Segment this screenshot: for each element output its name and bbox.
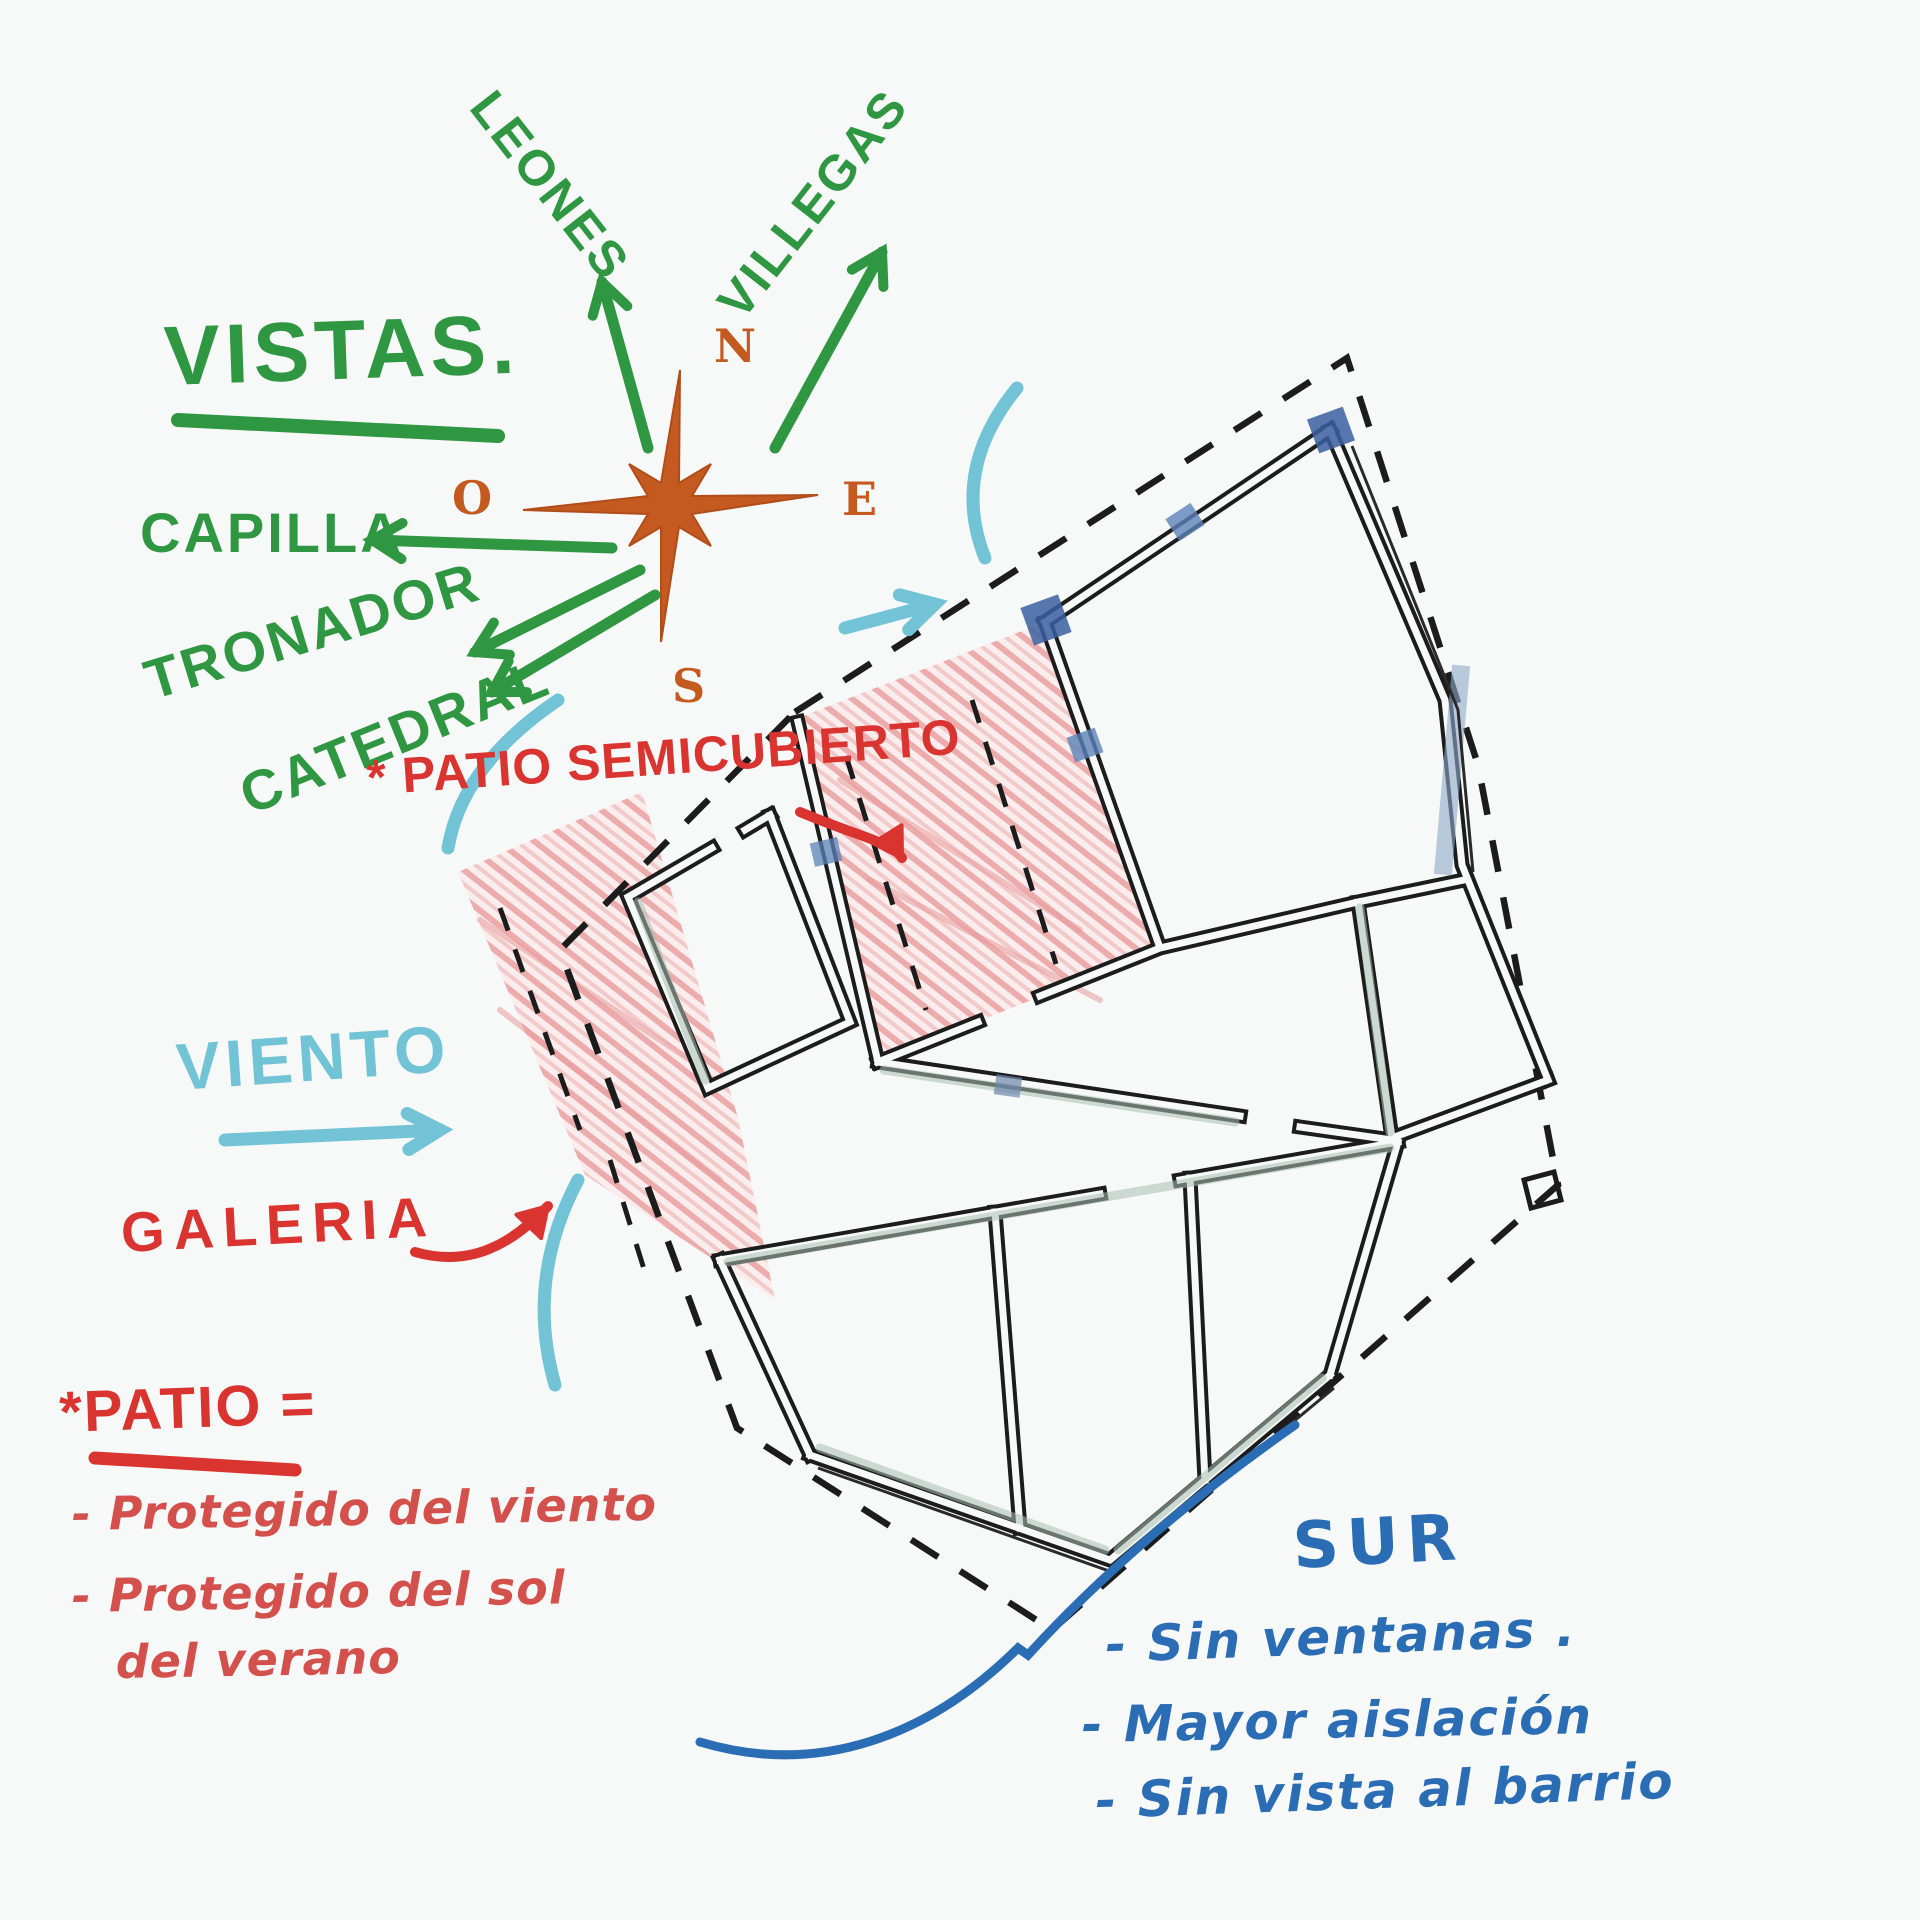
patio-heading-underline <box>95 1458 295 1470</box>
galeria-label: GALERIA <box>119 1185 437 1264</box>
wind-arc-top <box>973 388 1017 558</box>
patio-semicubierto-hatch <box>798 622 1160 1062</box>
compass-s-label: S <box>672 659 705 713</box>
patio-notes-heading: *PATIO = <box>58 1371 317 1445</box>
arrow-tronador <box>475 570 640 652</box>
label-capilla: CAPILLA <box>140 501 404 564</box>
viento-label: VIENTO <box>174 1011 453 1104</box>
sur-note-1: - Sin ventanas . <box>1104 1600 1577 1674</box>
label-villegas: VILLEGAS <box>707 78 920 328</box>
galeria-hatch <box>458 792 775 1300</box>
arrow-capilla <box>372 540 612 548</box>
window-corridor <box>994 1074 1023 1097</box>
sur-note-3: - Sin vista al barrio <box>1094 1752 1675 1830</box>
patio-note-1: - Protegido del viento <box>71 1477 657 1541</box>
label-leones: LEONES <box>459 80 641 291</box>
sur-heading: SUR <box>1291 1501 1466 1584</box>
site-plan-sketch: N E S O VISTAS. LEONES VILLEGAS CAPILLA … <box>0 0 1920 1920</box>
vistas-underline <box>178 420 498 436</box>
wind-arrow-corner <box>845 604 935 628</box>
wind-arrow-label <box>225 1130 440 1140</box>
arrow-leones <box>602 282 648 448</box>
arrow-villegas <box>775 252 882 448</box>
building-walls <box>628 407 1548 1572</box>
patio-note-2: - Protegido del sol <box>71 1560 566 1623</box>
vistas-heading: VISTAS. <box>162 297 521 403</box>
compass-e-label: E <box>842 472 877 526</box>
sur-note-2: - Mayor aislación <box>1081 1687 1593 1754</box>
patio-note-3: del verano <box>115 1630 401 1689</box>
compass-o-label: O <box>452 471 492 525</box>
sketch-page: N E S O VISTAS. LEONES VILLEGAS CAPILLA … <box>0 0 1920 1920</box>
